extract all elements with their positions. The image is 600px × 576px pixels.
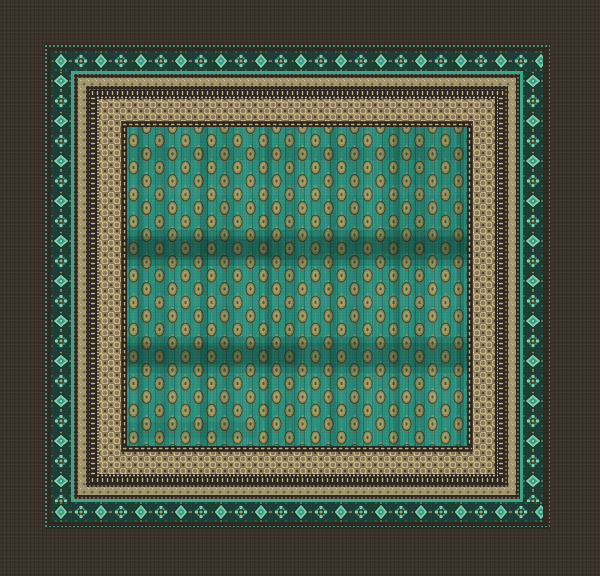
- photo-grain-overlay: [0, 0, 600, 576]
- textile-photo: [0, 0, 600, 576]
- textile-photo-svg: [0, 0, 600, 576]
